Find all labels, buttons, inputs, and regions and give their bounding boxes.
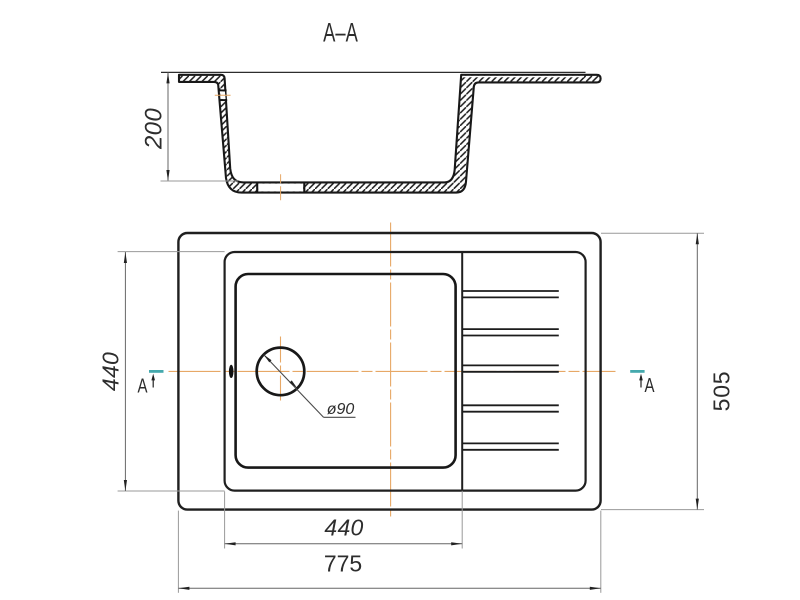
svg-text:775: 775 [324, 551, 362, 577]
svg-text:505: 505 [709, 371, 735, 412]
svg-text:A: A [138, 374, 148, 397]
svg-text:440: 440 [98, 352, 124, 391]
svg-text:A: A [645, 374, 655, 397]
svg-text:200: 200 [141, 108, 168, 150]
svg-text:ø90: ø90 [327, 401, 355, 418]
svg-text:A–A: A–A [323, 17, 358, 47]
svg-text:440: 440 [324, 515, 363, 541]
